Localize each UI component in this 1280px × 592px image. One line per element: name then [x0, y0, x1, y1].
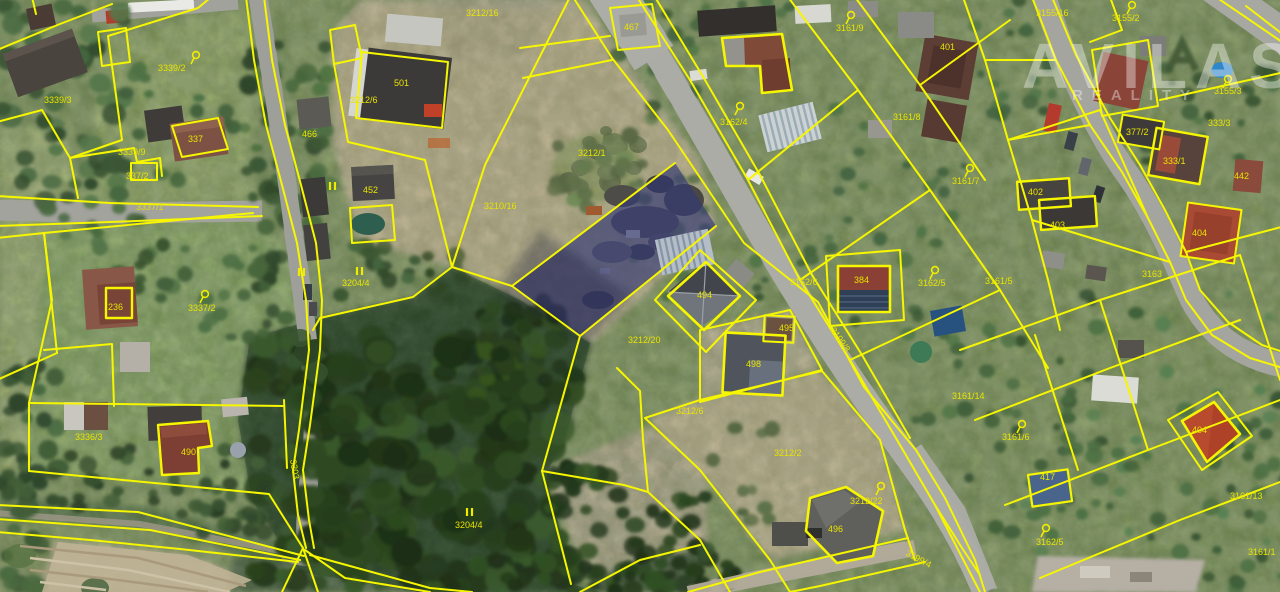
svg-text:3161/6: 3161/6	[1002, 432, 1030, 442]
svg-text:402: 402	[1028, 187, 1043, 197]
svg-text:384: 384	[854, 275, 869, 285]
svg-text:490: 490	[181, 447, 196, 457]
svg-text:495: 495	[779, 323, 794, 333]
svg-text:3155/2: 3155/2	[1112, 13, 1140, 23]
svg-text:3161/5: 3161/5	[985, 276, 1013, 286]
svg-text:452: 452	[363, 185, 378, 195]
svg-text:333/3: 333/3	[1208, 118, 1231, 128]
svg-text:3204/4: 3204/4	[455, 520, 483, 530]
svg-text:3212/6: 3212/6	[350, 95, 378, 105]
svg-text:494: 494	[697, 290, 712, 300]
svg-text:3161/1: 3161/1	[1248, 547, 1276, 557]
svg-text:REALITY: REALITY	[1072, 87, 1199, 104]
svg-text:3204/4: 3204/4	[342, 278, 370, 288]
svg-text:466: 466	[302, 129, 317, 139]
svg-text:3162/5: 3162/5	[918, 278, 946, 288]
svg-text:3337/2: 3337/2	[188, 303, 216, 313]
svg-text:3161/7: 3161/7	[952, 176, 980, 186]
svg-text:403: 403	[1050, 220, 1065, 230]
svg-text:3212/22: 3212/22	[850, 496, 883, 506]
svg-text:498: 498	[746, 359, 761, 369]
svg-text:3161/14: 3161/14	[952, 391, 985, 401]
svg-text:3212/20: 3212/20	[628, 335, 661, 345]
svg-text:3162/5: 3162/5	[1036, 537, 1064, 547]
svg-text:3337/1: 3337/1	[136, 202, 164, 212]
svg-text:337: 337	[188, 134, 203, 144]
svg-text:404: 404	[1192, 228, 1207, 238]
svg-text:467: 467	[624, 22, 639, 32]
svg-text:3161/8: 3161/8	[893, 112, 921, 122]
svg-text:401: 401	[940, 42, 955, 52]
svg-text:3212/16: 3212/16	[466, 8, 499, 18]
svg-text:3212/6: 3212/6	[676, 406, 704, 416]
svg-text:3161/9: 3161/9	[836, 23, 864, 33]
svg-text:417: 417	[1040, 472, 1055, 482]
svg-text:3163: 3163	[1142, 269, 1162, 279]
svg-text:3339/9: 3339/9	[118, 147, 146, 157]
svg-text:3336/3: 3336/3	[75, 432, 103, 442]
svg-text:3212/2: 3212/2	[774, 448, 802, 458]
svg-text:236: 236	[108, 302, 123, 312]
svg-text:3155/16: 3155/16	[1036, 8, 1069, 18]
svg-text:442: 442	[1234, 171, 1249, 181]
svg-text:3339/2: 3339/2	[158, 63, 186, 73]
svg-text:333/1: 333/1	[1163, 156, 1186, 166]
svg-text:3162/4: 3162/4	[720, 117, 748, 127]
svg-text:496: 496	[828, 524, 843, 534]
svg-text:3162/6: 3162/6	[790, 277, 818, 287]
svg-text:3339/3: 3339/3	[44, 95, 72, 105]
svg-text:3210/16: 3210/16	[484, 201, 517, 211]
svg-text:3161/13: 3161/13	[1230, 491, 1263, 501]
svg-text:404: 404	[1192, 425, 1207, 435]
svg-text:337/2: 337/2	[126, 171, 149, 181]
svg-text:501: 501	[394, 78, 409, 88]
svg-text:3212/1: 3212/1	[578, 148, 606, 158]
svg-text:377/2: 377/2	[1126, 127, 1149, 137]
